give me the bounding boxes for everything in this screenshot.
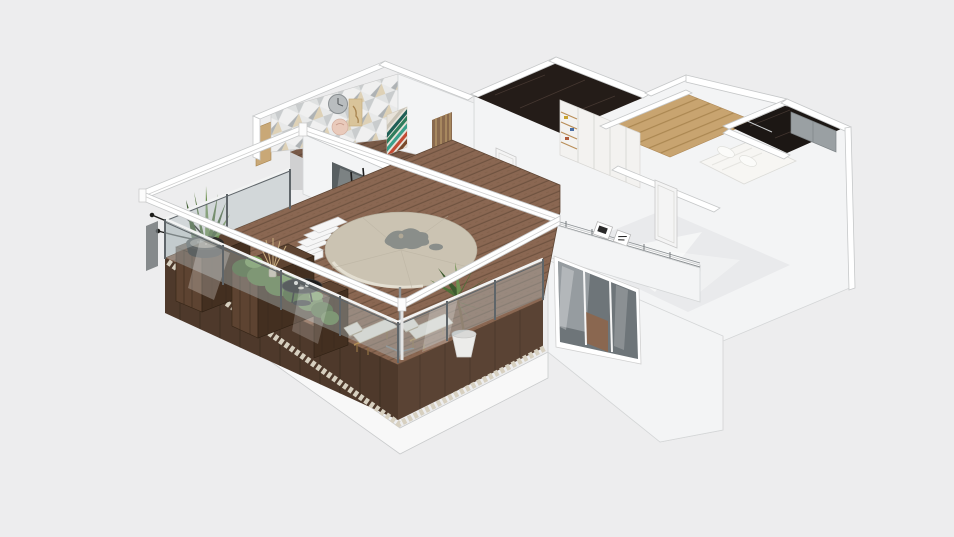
floorplan-3d-viewport[interactable]: [0, 0, 954, 537]
floorplan-3d-render[interactable]: [0, 0, 954, 537]
bedroom-door: [655, 180, 677, 248]
decor-plate: [332, 119, 348, 135]
railing-end-panel: [146, 221, 158, 271]
bird-artwork: [349, 99, 362, 126]
